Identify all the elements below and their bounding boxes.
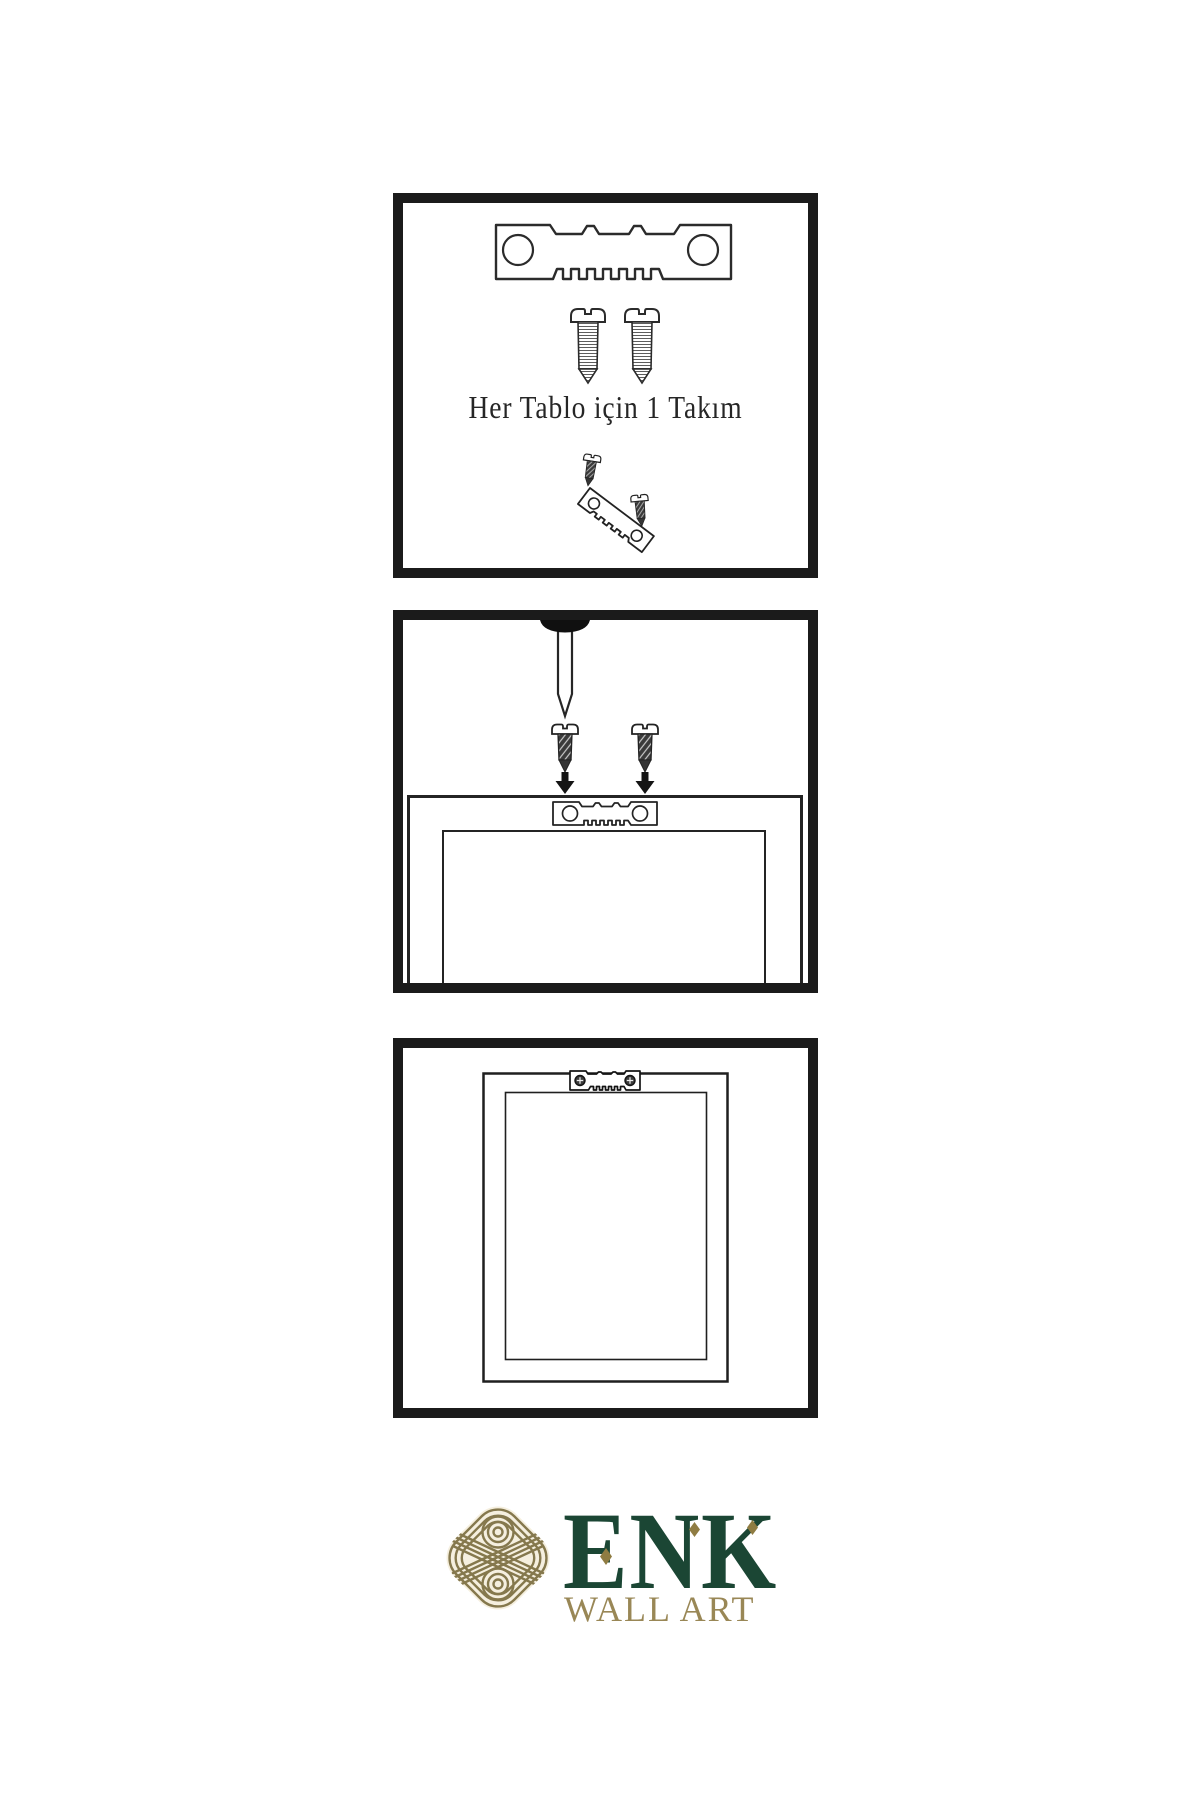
screw-icon: [632, 725, 658, 773]
panel-mount-hanger: [393, 610, 818, 993]
panel-hardware-kit: Her Tablo için 1 Takım: [393, 193, 818, 578]
interlaced-knot-icon: [431, 1492, 565, 1632]
hardware-kit-diagram: [403, 203, 808, 568]
brand-tagline: WALL ART: [564, 1591, 755, 1627]
sawtooth-hanger-icon: [496, 225, 731, 279]
screw-icon: [625, 309, 659, 383]
wall-nail-icon: [540, 620, 590, 716]
screw-icon: [571, 309, 605, 383]
mounted-sawtooth-hanger-icon: [570, 1071, 640, 1090]
down-arrow-icon: [556, 772, 575, 794]
instruction-sheet: Her Tablo için 1 Takım: [0, 0, 1200, 1800]
frame-with-sawtooth-hanger-icon: [409, 797, 802, 984]
hung-frame-icon: [484, 1074, 728, 1382]
panel-hung-frame: [393, 1038, 818, 1418]
hanger-assembly-icon: [578, 454, 654, 552]
mount-hanger-diagram: [403, 620, 808, 983]
brand-logo: ENK WALL ART: [430, 1492, 810, 1662]
down-arrow-icon: [636, 772, 655, 794]
hung-frame-diagram: [403, 1048, 808, 1408]
screw-icon: [552, 725, 578, 773]
kit-caption: Her Tablo için 1 Takım: [431, 389, 779, 426]
